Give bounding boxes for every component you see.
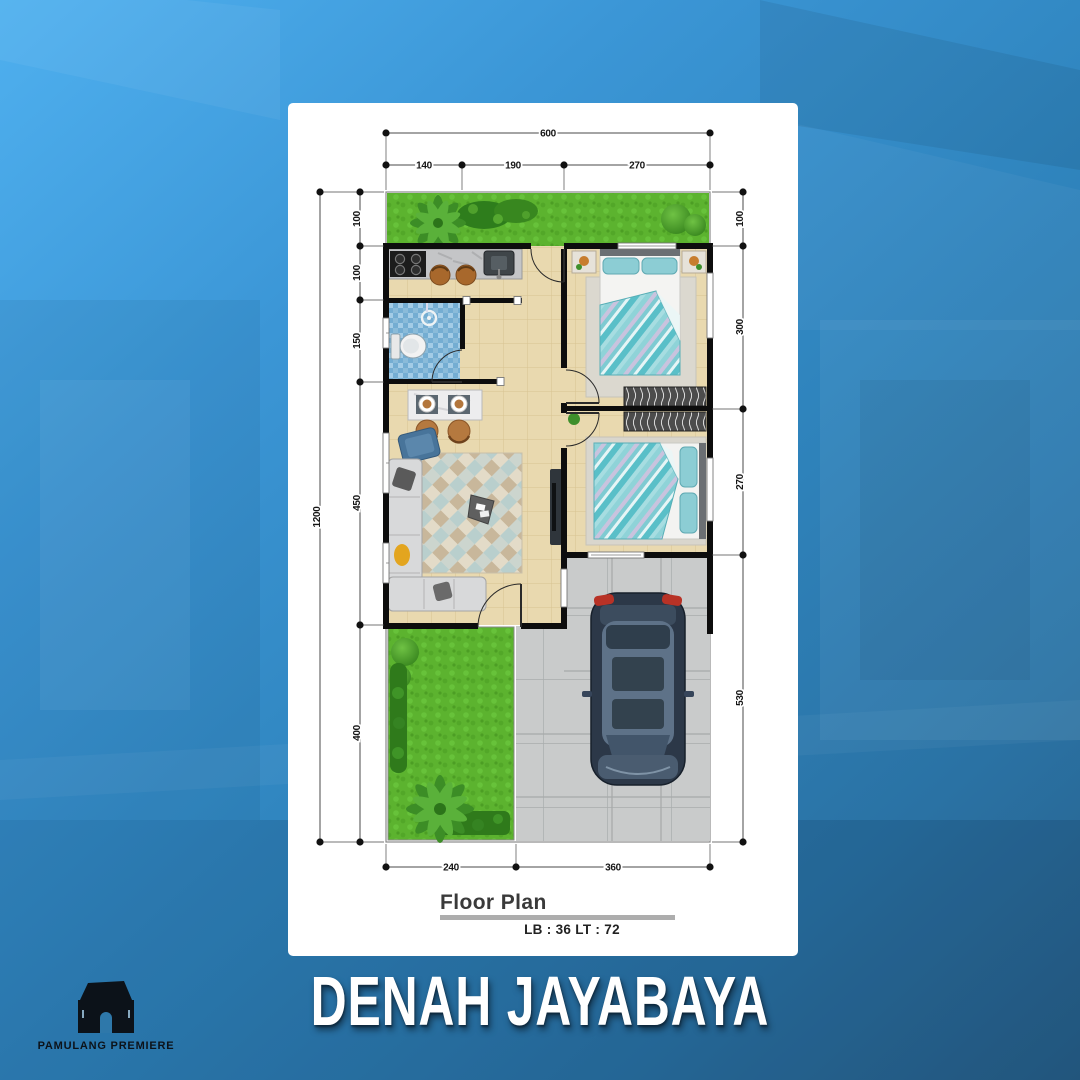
floor-plan-card: 600 140 190 270 1200 100 100 150 450 400… [288,103,798,956]
palm-tree-front [410,195,466,251]
brand-logo: PAMULANG PREMIERE [16,980,196,1052]
dim-top-seg: 190 [505,161,522,172]
yellow-pillow [394,544,410,566]
pillow [603,258,639,274]
dim-left-seg: 100 [352,210,363,227]
caption-underline [440,915,675,920]
side-mirror [582,691,592,697]
dim-left-total: 1200 [312,506,323,528]
wardrobe [624,387,706,406]
bed-1 [600,249,680,375]
dim-right-seg: 530 [735,689,746,706]
dim-left-seg: 400 [352,724,363,741]
pillow [642,258,677,274]
house-icon [74,980,138,1034]
dim-top-seg: 270 [629,161,646,172]
poster-title: DENAH JAYABAYA [311,961,770,1041]
dim-right-seg: 300 [735,318,746,335]
bed-2 [594,443,706,539]
area-label: LB : 36 LT : 72 [524,922,620,937]
floor-plan-drawing: 600 140 190 270 1200 100 100 150 450 400… [288,103,798,956]
car [582,593,694,785]
stove [390,251,426,277]
pillow [680,493,697,533]
dim-bottom-seg: 240 [443,863,460,874]
dim-right-seg: 100 [735,210,746,227]
dim-right-seg: 270 [735,473,746,490]
bedroom-1 [572,249,706,397]
pillow [680,447,697,487]
brand-name: PAMULANG PREMIERE [38,1040,175,1052]
dim-left-seg: 450 [352,494,363,511]
dim-bottom-seg: 360 [605,863,622,874]
palm-tree-back [406,775,474,843]
dim-left-seg: 100 [352,264,363,281]
side-mirror [684,691,694,697]
dim-left-seg: 150 [352,332,363,349]
dim-top-seg: 140 [416,161,433,172]
poster: { "banner": { "title": "DENAH JAYABAYA" … [0,0,1080,1080]
wardrobe [624,412,706,431]
floor-plan-caption: Floor Plan [440,891,547,914]
duvet [594,443,678,539]
dim-top-total: 600 [540,129,557,140]
